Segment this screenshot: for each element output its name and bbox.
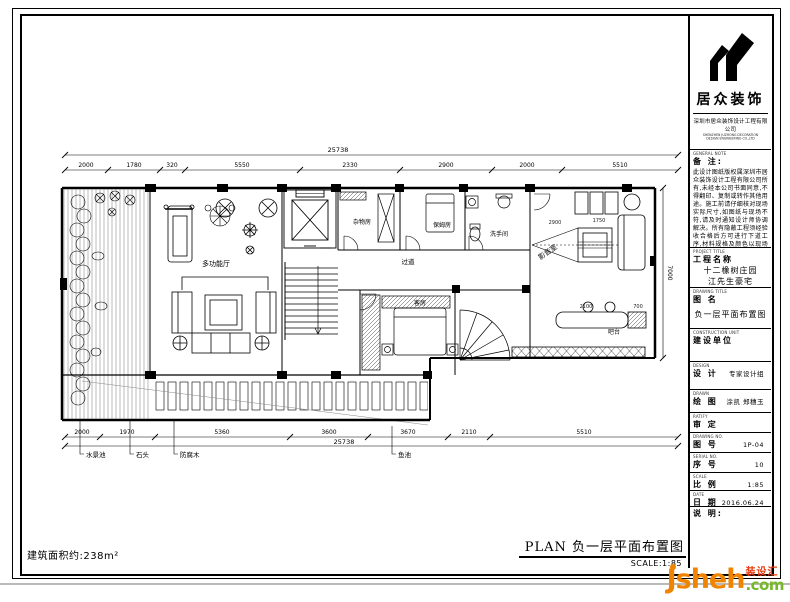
plan-scale: SCALE:1:85 [468,559,686,568]
plan-title: PLAN 负一层平面布置图 [519,536,686,558]
svg-text:1970: 1970 [119,429,134,436]
dimension-top: 25738 2000 1780 320 5550 2330 2900 2000 … [62,146,681,173]
note-cn-label: 备 注: [693,156,768,167]
svg-text:5550: 5550 [234,162,249,169]
project-name-line1: 十二橡树庄园 [693,265,768,276]
svg-text:洗手间: 洗手间 [490,230,508,238]
watermark-com: .com [745,578,784,593]
jsheh-brand[interactable]: Jsheh [667,566,745,593]
plan-caption: PLAN 负一层平面布置图 SCALE:1:85 [468,536,686,568]
svg-text:过道: 过道 [402,257,416,266]
elevator [284,190,336,248]
dwg-no-value: 1P-04 [743,441,764,449]
treadmill-icon [164,205,194,262]
svg-text:多功能厅: 多功能厅 [202,259,230,268]
design-value: 专家设计组 [729,368,764,378]
dimension-bottom: 2000 1970 5360 3600 3670 2110 5510 25738 [62,429,681,449]
scale-value: 1:85 [747,481,764,489]
service-rooms [340,192,550,310]
watermark-logo[interactable]: Jsheh 装设汇 .com [667,566,784,593]
bar-area [512,302,646,357]
drawing-cn-label: 图 名 [693,294,768,305]
logo-section: 居众装饰 深圳市居众装饰设计工程有限公司 SHENZHEN JUZHONG DE… [690,16,771,150]
svg-text:防腐木: 防腐木 [180,450,200,459]
logo-text: 居众装饰 [693,89,768,109]
drawn-value: 涂凯 郑穗玉 [726,396,764,406]
stair-straight [285,266,338,334]
svg-text:客房: 客房 [414,299,426,307]
svg-text:320: 320 [166,162,178,169]
svg-text:1750: 1750 [593,218,606,224]
construction-unit-section: CONSTRUCTION UNIT 建设单位 [690,329,771,362]
svg-text:水景池: 水景池 [86,450,106,459]
floor-plan: 25738 2000 1780 320 5550 2330 2900 2000 … [22,16,686,568]
svg-text:鱼池: 鱼池 [398,450,412,459]
date-value: 2016.06.24 [722,499,764,507]
approve-row: RATIFY 审 定 [690,413,771,433]
building-area-note: 建筑面积约:238m² [27,547,119,562]
drawn-row: DRAWN 绘 图涂凯 郑穗玉 [690,390,771,413]
brand-dot-icon [670,564,676,570]
svg-text:7000: 7000 [666,265,673,280]
svg-text:25738: 25738 [334,438,355,446]
design-row: DESIGN 设 计专家设计组 [690,362,771,390]
drawing-sheet: 25738 2000 1780 320 5550 2330 2900 2000 … [0,0,790,602]
svg-text:保姆房: 保姆房 [433,221,451,229]
svg-text:杂物房: 杂物房 [353,218,371,226]
serial-cn-label: 序 号 [693,459,718,470]
drawing-title-value: 负一层平面布置图 [693,309,768,320]
date-cn-label: 日 期 [693,497,718,507]
juzhong-logo-icon [702,25,760,83]
construction-cn-label: 建设单位 [693,335,768,346]
svg-text:2330: 2330 [342,162,357,169]
hall-furniture [164,199,277,353]
svg-text:2900: 2900 [549,220,562,226]
svg-text:2000: 2000 [74,429,89,436]
svg-text:3600: 3600 [321,429,336,436]
dwg-no-row: DRAWING NO. 图 号1P-04 [690,433,771,453]
svg-text:影音室: 影音室 [536,242,558,261]
title-block: 居众装饰 深圳市居众装饰设计工程有限公司 SHENZHEN JUZHONG DE… [688,16,771,568]
dwg-no-cn-label: 图 号 [693,439,718,450]
scale-cn-label: 比 例 [693,479,718,490]
svg-text:2000: 2000 [78,162,93,169]
general-note-section: GENERAL NOTE 备 注: 此设计图纸版权属深圳市居众装饰设计工程有限公… [690,150,771,248]
svg-text:2000: 2000 [519,162,534,169]
company-name-en: SHENZHEN JUZHONG DECORATION DESIGN ENGIN… [697,133,765,140]
svg-text:1780: 1780 [126,162,141,169]
svg-text:2900: 2900 [438,162,453,169]
drawing-title-section: DRAWING TITLE 图 名 负一层平面布置图 [690,288,771,329]
leader-labels: 水景池 石头 防腐木 鱼池 [80,420,412,459]
serial-row: SERIAL NO. 序 号10 [690,453,771,473]
svg-text:3670: 3670 [400,429,415,436]
date-row: DATE 日 期2016.06.24 [690,491,771,507]
svg-text:吧台: 吧台 [608,328,620,336]
interior-dims: 2900 1750 2100 700 [549,218,643,310]
scale-row: SCALE 比 例1:85 [690,473,771,491]
project-title-section: PROJECT TITLE 工程名称 十二橡树庄园 江先生豪宅 [690,248,771,288]
company-name: 深圳市居众装饰设计工程有限公司 [693,113,768,133]
project-name-line2: 江先生豪宅 [693,276,768,287]
approve-cn-label: 审 定 [693,419,718,430]
remark-section: 说 明: [690,507,771,568]
media-room [532,192,645,270]
dimension-right: 7000 [660,185,673,361]
drawn-cn-label: 绘 图 [693,396,718,407]
svg-text:700: 700 [633,304,643,310]
serial-value: 10 [755,461,764,469]
svg-text:2110: 2110 [461,429,476,436]
svg-text:2100: 2100 [580,304,593,310]
note-body: 此设计图纸版权属深圳市居众装饰设计工程有限公司所有,未经本公司书面同意,不得翻印… [693,169,768,248]
door-arcs [344,194,550,310]
svg-text:石头: 石头 [136,450,150,459]
svg-text:5360: 5360 [214,429,229,436]
project-cn-label: 工程名称 [693,254,768,265]
svg-text:5510: 5510 [612,162,627,169]
remark-cn-label: 说 明: [693,508,768,519]
interior-walls [150,188,530,375]
stair-curved [460,310,510,360]
svg-text:25738: 25738 [328,146,349,154]
svg-text:5510: 5510 [576,429,591,436]
design-cn-label: 设 计 [693,368,718,379]
